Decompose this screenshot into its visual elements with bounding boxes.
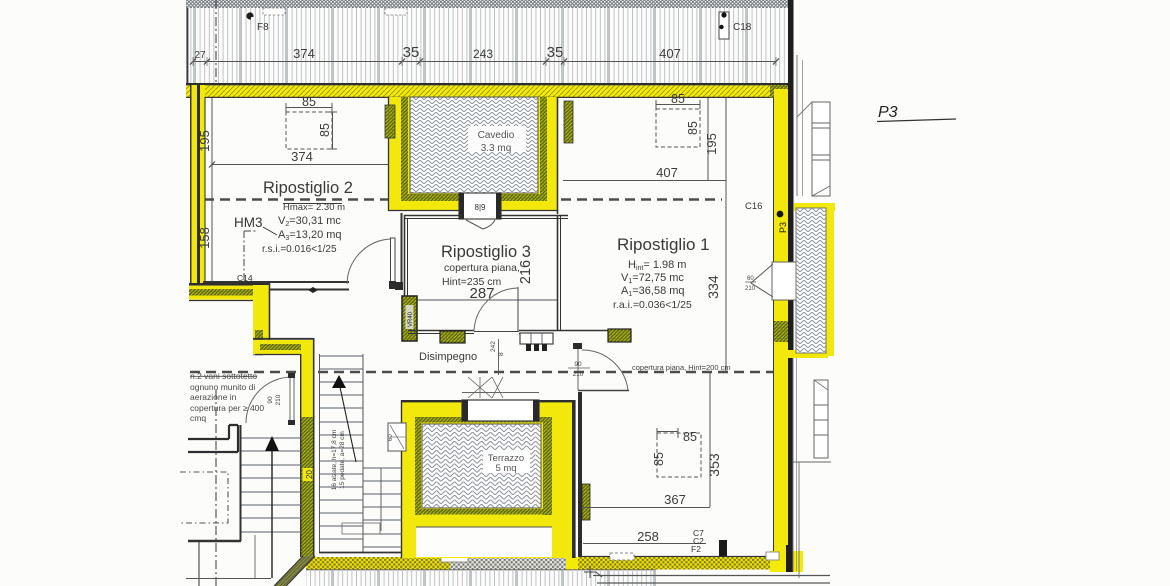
svg-text:Disimpegno: Disimpegno xyxy=(419,351,477,363)
svg-text:C14: C14 xyxy=(237,273,253,283)
svg-text:258: 258 xyxy=(637,529,659,544)
svg-text:374: 374 xyxy=(293,46,315,61)
svg-text:60: 60 xyxy=(388,434,394,441)
svg-text:407: 407 xyxy=(656,165,678,180)
svg-text:195: 195 xyxy=(197,130,212,152)
svg-text:C18: C18 xyxy=(733,22,752,33)
svg-text:20: 20 xyxy=(305,470,314,479)
svg-text:35: 35 xyxy=(403,44,420,61)
svg-text:287: 287 xyxy=(469,285,494,302)
svg-text:r.s.i.=0.016<1/25: r.s.i.=0.016<1/25 xyxy=(262,244,337,255)
svg-text:35: 35 xyxy=(547,44,564,61)
svg-text:210: 210 xyxy=(745,286,756,292)
svg-text:195: 195 xyxy=(704,133,719,155)
svg-text:r.a.i.=0.036<1/25: r.a.i.=0.036<1/25 xyxy=(613,299,692,311)
svg-text:85: 85 xyxy=(683,430,697,444)
svg-text:367: 367 xyxy=(664,492,686,507)
svg-text:353: 353 xyxy=(706,453,722,477)
svg-text:copertura per ≥ 400: copertura per ≥ 400 xyxy=(190,403,264,413)
svg-text:n.2 vani sottotetto: n.2 vani sottotetto xyxy=(190,371,257,381)
svg-text:copertura piana, Hint=200 cm: copertura piana, Hint=200 cm xyxy=(632,363,731,372)
svg-text:210: 210 xyxy=(573,371,584,378)
svg-text:210: 210 xyxy=(275,394,282,405)
svg-text:374: 374 xyxy=(291,149,313,164)
svg-text:3.3 mq: 3.3 mq xyxy=(481,143,512,154)
svg-text:Ripostiglio 3: Ripostiglio 3 xyxy=(441,243,531,261)
svg-text:60: 60 xyxy=(747,276,754,282)
svg-text:85: 85 xyxy=(302,95,316,109)
svg-text:5 mq: 5 mq xyxy=(495,463,516,474)
svg-text:P3: P3 xyxy=(778,222,788,233)
svg-text:90: 90 xyxy=(267,396,274,404)
svg-text:Ripostiglio 2: Ripostiglio 2 xyxy=(263,179,353,197)
svg-text:8|9: 8|9 xyxy=(475,203,487,212)
svg-text:F2: F2 xyxy=(691,544,701,554)
svg-text:90: 90 xyxy=(574,361,582,368)
svg-text:85: 85 xyxy=(686,121,700,135)
svg-text:334: 334 xyxy=(705,275,721,299)
svg-text:F8: F8 xyxy=(257,22,269,33)
svg-text:HM3: HM3 xyxy=(234,215,263,230)
svg-text:cmq: cmq xyxy=(190,413,206,423)
svg-text:VR40: VR40 xyxy=(408,311,414,327)
svg-text:242: 242 xyxy=(490,341,497,352)
svg-text:158: 158 xyxy=(197,227,212,249)
svg-text:Cavedio: Cavedio xyxy=(478,130,515,141)
svg-text:copertura piana,: copertura piana, xyxy=(444,262,520,274)
svg-text:27: 27 xyxy=(194,50,206,61)
svg-text:407: 407 xyxy=(659,46,681,61)
svg-text:aerazione in: aerazione in xyxy=(190,392,237,402)
svg-text:ognuno munito di: ognuno munito di xyxy=(190,382,255,392)
svg-text:C16: C16 xyxy=(745,201,762,212)
svg-text:8: 8 xyxy=(498,352,505,356)
svg-text:85: 85 xyxy=(318,123,332,137)
svg-text:P3: P3 xyxy=(878,104,898,121)
svg-text:16 alzate, h=17,8 cm: 16 alzate, h=17,8 cm xyxy=(331,430,338,491)
svg-text:Ripostiglio 1: Ripostiglio 1 xyxy=(617,235,710,254)
svg-text:85: 85 xyxy=(652,452,666,466)
svg-text:15 pedate, a=28 cm: 15 pedate, a=28 cm xyxy=(339,431,346,489)
svg-text:216: 216 xyxy=(518,260,534,284)
svg-text:243: 243 xyxy=(473,47,493,61)
svg-text:85: 85 xyxy=(671,92,685,106)
